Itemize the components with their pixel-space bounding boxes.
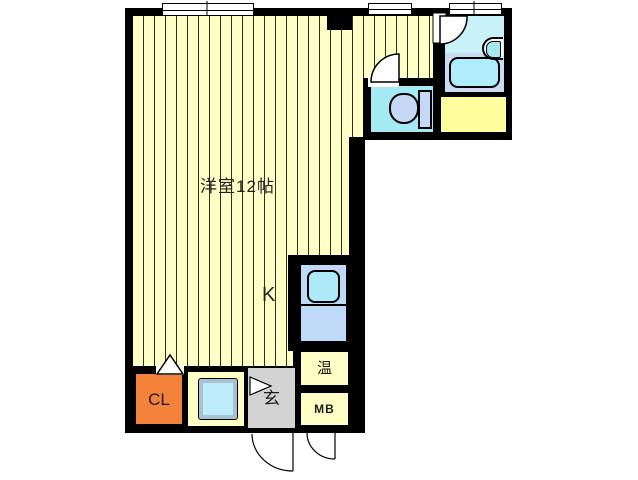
closet-label: CL xyxy=(148,391,170,408)
entrance-door-swing-icon xyxy=(252,434,293,471)
service-room xyxy=(441,97,506,132)
closet: CL xyxy=(136,374,182,424)
water-heater-box: 温 xyxy=(301,352,348,385)
meter-box: MB xyxy=(301,393,348,425)
kitchen-label: K xyxy=(262,284,275,307)
meter-box-door-swing-icon xyxy=(307,433,335,459)
floor-plan: 温 MB CL 玄 洋室12帖 K xyxy=(0,0,638,480)
entrance-label: 玄 xyxy=(263,390,280,407)
main-room-label: 洋室12帖 xyxy=(165,172,310,197)
wash-basin-bowl-icon xyxy=(486,41,501,58)
washing-machine-pan-icon xyxy=(199,379,237,419)
water-heater-label: 温 xyxy=(317,361,332,376)
toilet-bowl-icon xyxy=(389,93,419,124)
toilet-tank-icon xyxy=(418,90,432,129)
window-icon xyxy=(449,3,502,15)
entrance-hall: 玄 xyxy=(248,368,295,428)
window-icon xyxy=(162,3,254,16)
pillar xyxy=(327,8,352,30)
toilet-door-opening xyxy=(368,78,399,87)
kitchen-counter-divider xyxy=(299,304,348,306)
window-icon xyxy=(368,3,412,15)
bathtub-icon xyxy=(449,57,500,88)
meter-box-label: MB xyxy=(314,403,335,415)
kitchen-sink-icon xyxy=(307,270,340,303)
